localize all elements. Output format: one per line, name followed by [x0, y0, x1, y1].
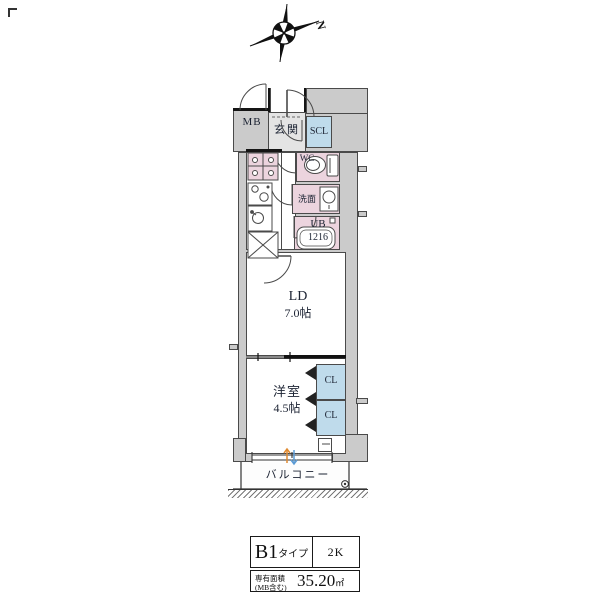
type-row-box: B1タイプ 2K [250, 536, 360, 568]
wall-bar-kitchen-top [246, 149, 282, 152]
area-label: 専有面積 (MB含む) [255, 574, 287, 593]
wall-bottom-left-block [233, 438, 246, 462]
area-value-wrap: 35.20㎡ [297, 571, 344, 591]
kitchen-strip [246, 152, 282, 250]
corner-crop-mark [8, 8, 17, 17]
wall-tab-right-3 [356, 398, 368, 404]
bedroom-label-line2: 4.5帖 [273, 401, 300, 415]
closet-upper-label: CL [316, 375, 346, 387]
type-value: B1 [255, 541, 278, 564]
balcony-label: バルコニー [258, 469, 338, 482]
area-label-line2: (MB含む) [255, 583, 287, 592]
layout-value: 2K [328, 545, 345, 560]
closet-lower-label: CL [316, 410, 346, 422]
wall-top-right [306, 88, 368, 114]
bath-label-line2: 1216 [308, 232, 328, 243]
type-cell: B1タイプ [251, 537, 313, 567]
compass-north-letter: N [313, 19, 329, 31]
wall-bar-alcove-right [304, 88, 306, 112]
window-band [252, 454, 332, 462]
type-suffix: タイプ [278, 545, 308, 560]
living-label: LD 7.0帖 [266, 289, 330, 323]
bath-label: UB 1216 [300, 218, 336, 244]
living-label-line1: LD [289, 289, 308, 304]
area-unit: ㎡ [335, 578, 344, 588]
area-label-line1: 専有面積 [255, 574, 285, 583]
wall-bar-alcove-left [268, 88, 270, 112]
wc-label: WC [296, 153, 318, 164]
compass-rose-icon: N [250, 4, 329, 62]
mb-door-swing-icon [240, 84, 266, 110]
wall-tab-right-2 [358, 211, 367, 217]
bedroom-label: 洋室 4.5帖 [255, 384, 319, 415]
bedroom-label-line1: 洋室 [273, 384, 301, 399]
floorplan-page: N [0, 0, 600, 600]
mb-label: MB [236, 116, 268, 129]
ground-hatch [228, 489, 368, 498]
wall-tab-right-1 [358, 166, 367, 172]
living-label-line2: 7.0帖 [284, 306, 311, 320]
utility-box [318, 438, 332, 452]
scl-label: SCL [306, 126, 332, 138]
entrance-label: 玄関 [269, 124, 305, 137]
area-value: 35.20 [297, 571, 335, 590]
area-row-box: 専有面積 (MB含む) 35.20㎡ [250, 570, 360, 592]
washroom-label: 洗面 [294, 194, 320, 205]
entrance-alcove [270, 88, 306, 114]
wall-bar-mb-top [233, 108, 270, 111]
bath-label-line1: UB [310, 218, 325, 230]
wall-tab-left [229, 344, 238, 350]
layout-cell: 2K [313, 537, 359, 567]
